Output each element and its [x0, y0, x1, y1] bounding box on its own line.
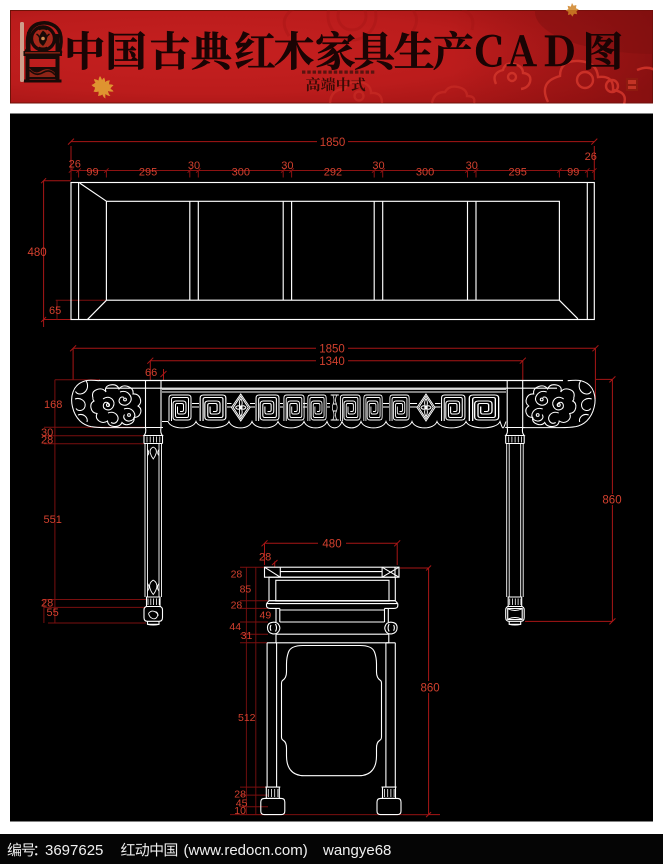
svg-text:(www.redocn.com): (www.redocn.com) — [184, 842, 308, 859]
svg-text:30: 30 — [188, 160, 200, 172]
svg-text:44: 44 — [229, 621, 241, 633]
svg-text:31: 31 — [241, 630, 253, 642]
svg-text:860: 860 — [421, 683, 440, 695]
svg-text:1340: 1340 — [319, 356, 345, 368]
svg-text:65: 65 — [49, 305, 61, 317]
svg-text:551: 551 — [44, 514, 62, 526]
svg-text:1850: 1850 — [319, 344, 345, 356]
svg-text:292: 292 — [324, 167, 342, 179]
svg-text:28: 28 — [231, 600, 243, 612]
svg-text:300: 300 — [416, 167, 434, 179]
svg-text:512: 512 — [238, 712, 256, 724]
svg-text:wangye68: wangye68 — [322, 842, 391, 859]
svg-text:30: 30 — [466, 160, 478, 172]
svg-text:30: 30 — [281, 160, 293, 172]
svg-text:860: 860 — [602, 495, 621, 507]
svg-text:480: 480 — [322, 538, 341, 550]
svg-text:168: 168 — [44, 399, 62, 411]
svg-text:66: 66 — [145, 367, 157, 379]
svg-text:1850: 1850 — [320, 137, 346, 149]
svg-text:99: 99 — [86, 167, 98, 179]
svg-text:3697625: 3697625 — [45, 842, 103, 859]
svg-text:295: 295 — [509, 167, 527, 179]
svg-text:480: 480 — [28, 247, 47, 259]
svg-text:28: 28 — [231, 569, 243, 581]
svg-text:300: 300 — [232, 167, 250, 179]
svg-text:55: 55 — [47, 607, 59, 619]
svg-text:295: 295 — [139, 167, 157, 179]
svg-text:28: 28 — [41, 435, 53, 447]
svg-text:28: 28 — [259, 552, 271, 564]
svg-text:26: 26 — [69, 159, 81, 171]
svg-text:30: 30 — [372, 160, 384, 172]
svg-text:99: 99 — [567, 167, 579, 179]
svg-text:49: 49 — [260, 610, 272, 622]
svg-text:10: 10 — [234, 805, 246, 817]
svg-text:26: 26 — [585, 151, 597, 163]
svg-text:85: 85 — [240, 584, 252, 596]
